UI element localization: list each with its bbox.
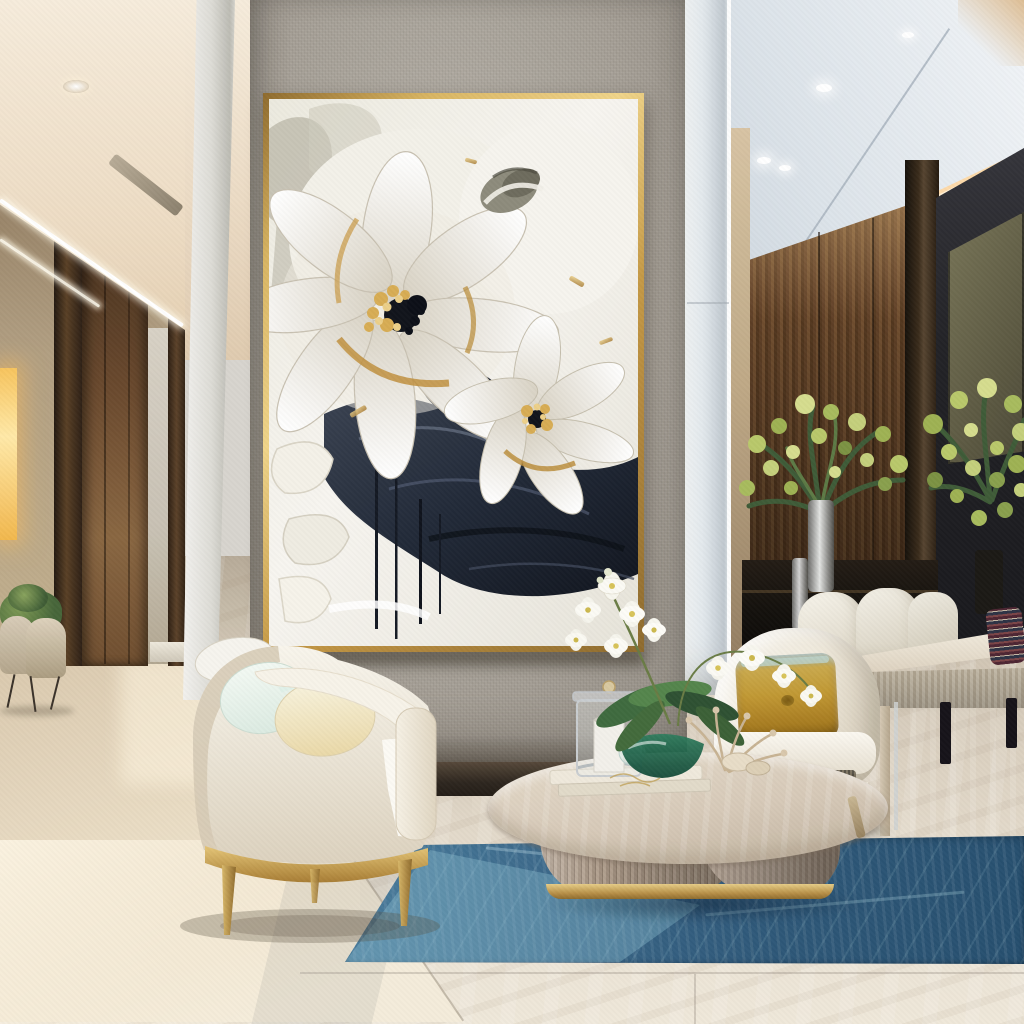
console-leg-black <box>1006 698 1017 748</box>
downlight-icon <box>757 157 771 164</box>
downlight-icon <box>816 84 832 92</box>
living-room-scene <box>0 0 1024 1024</box>
bouquet-right <box>923 378 1024 614</box>
walnut-trim <box>168 86 185 666</box>
coffee-table-decor <box>520 556 860 846</box>
armchair-left <box>160 620 460 950</box>
coffee-table-gold-trim <box>546 884 834 899</box>
downlight-icon <box>779 165 791 171</box>
onyx-glow-panel <box>0 368 17 540</box>
console-leg-black <box>940 702 951 764</box>
doorway-gap <box>148 328 170 664</box>
hallway-door <box>82 238 148 666</box>
console-leg-metal <box>894 702 898 830</box>
downlight-icon <box>63 80 89 93</box>
patterned-pillow <box>985 606 1024 665</box>
downlight-icon <box>902 32 914 38</box>
armchair-front-arm <box>396 708 436 840</box>
bronze-mesh-panel <box>54 232 82 666</box>
lounge-chair-far <box>26 618 66 678</box>
